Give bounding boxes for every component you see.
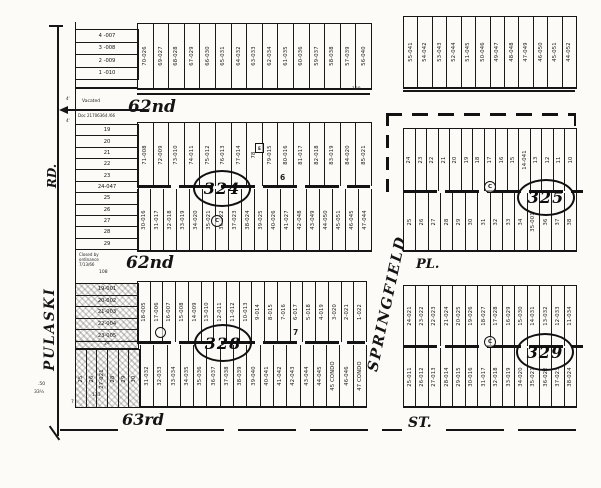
lot-strip-328-24: 24 [75,340,139,349]
lot: 18 [473,129,485,191]
lot: 30 [466,193,478,250]
lot: 20-002 [76,296,138,308]
lot: 24 [404,129,416,191]
street-label-springfield-pl: PL. [416,257,439,272]
lot: 57-039 [341,24,357,88]
lot: 32-018 [164,189,177,250]
lot: 19-026 [466,286,478,346]
lot: 26 [87,350,98,407]
lot: 33 [503,193,515,250]
lot: 27-013 [429,348,441,406]
closed-note-3: 7/13/66 [79,262,94,267]
lot: 42-043 [287,345,300,406]
lot: 44-052 [563,17,576,87]
circle-marker-328 [155,327,166,338]
lot: 41-042 [274,345,287,406]
lot: 3 -008 [76,43,138,56]
block-number-328: 328 [194,324,252,362]
lot: 26 [416,193,428,250]
lot: 27 [429,193,441,250]
north-strip-east-streetline [403,90,575,92]
lot: 32-018 [491,348,503,406]
dim-33half: 33½ [34,390,44,395]
lot: 19-001 [76,284,138,296]
lot: 62-034 [263,24,279,88]
lot: 46-050 [534,17,548,87]
lot: 24 [104,342,110,347]
lot: 10 [565,129,576,191]
plat-map: RD. PULASKI 62nd 62nd SPRINGFIELD PL. 63… [0,0,601,488]
lot-col-324-west: 192021222324-0472526272829 [75,124,139,250]
lot: 47-049 [519,17,533,87]
63rd-centerline-west [60,429,118,431]
lot: 30 [129,350,139,407]
lot: 16 [496,129,508,191]
lot: 81-017 [294,123,310,186]
lot: 2-021 [342,282,355,342]
lot: 58-038 [325,24,341,88]
lot: 52-044 [447,17,461,87]
lot-row-328-north: 18-00517-00616-00715-00814-00913-01012-0… [137,281,367,342]
lot: 28-014 [441,348,453,406]
lot: 22-023 [429,286,441,346]
lot: 53-043 [433,17,447,87]
lot-row-north-strip-west: 70-02669-02768-02867-02966-03065-03164-0… [137,23,372,90]
tick-4-upper: 4' [66,96,70,101]
lot: 20 [76,136,138,147]
lot: 29 [76,239,138,249]
lot: 3-020 [329,282,342,342]
c-marker-324: C [211,215,223,227]
dashed-boundary-top [386,113,576,116]
lot: 69-027 [154,24,170,88]
lot: 24-021 [404,286,416,346]
lot: 26 [76,205,138,216]
lot: 29-015 [453,348,465,406]
lot: 33-019 [503,348,515,406]
lot: 45-051 [333,189,346,250]
63rd-centerline-east [446,429,588,431]
lot: 67-029 [185,24,201,88]
lot: 46-045 [346,189,359,250]
lot: 16-029 [503,286,515,346]
lot: 23 [416,129,428,191]
lot: 4-019 [316,282,329,342]
lot: 79-015 [263,123,279,186]
lot: 70-026 [138,24,154,88]
lot: 82-018 [310,123,326,186]
lot: 33-019 [177,189,190,250]
lot: 19 [462,129,474,191]
lot: 5-018 [303,282,316,342]
lot: 40-026 [268,189,281,250]
lot: 23-022 [416,286,428,346]
lot: 31-032 [141,345,154,406]
lot: 84-020 [341,123,357,186]
lot: 34-035 [181,345,194,406]
dashed-boundary-east-stub [574,113,577,126]
lot-row-328-southwest: 252627-021282930 [75,349,140,408]
lot: 54-042 [418,17,432,87]
lot: 20 [450,129,462,191]
dim-133: 133 [92,393,101,398]
lot: 15 [508,129,520,191]
lot: 20-025 [453,286,465,346]
lot: 19 [76,125,138,136]
lot: 28 [441,193,453,250]
dashed-boundary-west [386,113,389,193]
alley-label-7: 7 [293,328,298,337]
lot: 41-027 [281,189,294,250]
lot: 59-037 [310,24,326,88]
alley-label-6: 6 [280,173,285,182]
lot: 9-014 [252,282,265,342]
lot: 30-016 [138,189,151,250]
lot: 1-022 [354,282,366,342]
lot: 45 CONDO [327,345,340,406]
lot: 71-008 [138,123,154,186]
lot: 42-048 [294,189,307,250]
lot: 24-047 [76,182,138,193]
lot: 32-033 [154,345,167,406]
lot: 22 [76,159,138,170]
lot: 43-049 [307,189,320,250]
block-number-329: 329 [516,333,574,371]
vacated-note: Vacated [82,99,100,104]
tick-4-lower: 4' [66,118,70,123]
lot: 65-031 [216,24,232,88]
lot: 27-021 [97,350,108,407]
lot: 39-040 [247,345,260,406]
lot: 25 [76,193,138,204]
lot: 33-034 [168,345,181,406]
alley-324 [137,185,370,188]
lot: 61-035 [278,24,294,88]
lot: 31 [478,193,490,250]
lot: 8-015 [265,282,278,342]
lot: 11-034 [565,286,576,346]
lot: 32 [491,193,503,250]
lot: 73-010 [169,123,185,186]
lot: 55-041 [404,17,418,87]
lot: 28 [76,227,138,238]
lot: 63-033 [247,24,263,88]
lot: 29 [453,193,465,250]
street-label-pulaski-rd: RD. [45,156,59,196]
lot: 43-044 [301,345,314,406]
c-marker-329: C [484,336,496,348]
north-strip-west-frontline [75,87,137,89]
lot: 60-036 [294,24,310,88]
lot-col-north-strip-west: 4 -0073 -0082 -0091 -010 [75,29,139,80]
lot-row-324-south: 30-01631-01732-01833-01934-02035-02136-0… [137,189,372,252]
lot: 21 [439,129,451,191]
lot: 21 [76,148,138,159]
street-label-pulaski: PULASKI [42,269,58,389]
lot: 44-050 [320,189,333,250]
lot: 31-017 [478,348,490,406]
e-box-marker: E [255,143,264,153]
street-label-62nd-lower: 62nd [126,253,174,273]
lot: 23 [76,170,138,181]
lot: 4 -007 [76,30,138,43]
lot: 68-028 [169,24,185,88]
lot: 50-046 [476,17,490,87]
lot: 51-045 [462,17,476,87]
lot: 78 [247,123,263,186]
vacated-arrow-head [59,106,68,114]
lot: 18-005 [138,282,151,342]
lot: 64-032 [232,24,248,88]
lot: 29 [119,350,130,407]
lot: 66-030 [200,24,216,88]
lot-row-328-south: 31-03232-03333-03434-03535-03636-03737-0… [140,345,367,408]
lot: 21-024 [441,286,453,346]
lot-row-324-north: 71-00872-00973-01074-01175-01276-01377-0… [137,122,372,186]
63rd-centerline-mid [166,429,402,431]
lot: 26-012 [416,348,428,406]
dim-108: 108 [99,270,108,275]
lot: 48-048 [505,17,519,87]
street-label-63rd-st: ST. [408,415,432,431]
dim-7: 7 [71,400,74,405]
lot: 22-004 [76,319,138,331]
c-marker-325: C [484,181,496,193]
lot: 1 -010 [76,68,138,80]
street-label-63rd: 63rd [122,410,164,429]
street-label-62nd-upper: 62nd [128,97,176,117]
lot: 72-009 [154,123,170,186]
lot: 56-040 [356,24,371,88]
lot: 25 [76,350,87,407]
lot: 7-016 [278,282,291,342]
north-strip-west-streetline [137,93,370,95]
lot: 2 -009 [76,55,138,68]
lot: 31-017 [151,189,164,250]
lot: 83-019 [325,123,341,186]
lot: 39-025 [255,189,268,250]
lot: 46-046 [340,345,353,406]
block-number-325: 325 [517,179,575,216]
lot-row-north-strip-east: 55-04154-04253-04352-04451-04550-04649-0… [403,16,577,89]
lot: 45-051 [548,17,562,87]
lot: 28 [108,350,119,407]
lot: 25-011 [404,348,416,406]
lot: 30-016 [466,348,478,406]
lot: 44-045 [314,345,327,406]
lot: 47-044 [359,189,371,250]
lot: 22 [427,129,439,191]
lot: 21-003 [76,307,138,319]
vacated-doc-note: Doc 21706364 /66 [78,113,115,118]
lot: 85-021 [356,123,371,186]
dim-128: 128 [352,87,361,92]
lot-col-328-west: 19-00120-00221-00322-00423-005 [75,283,139,342]
lot: 27 [76,216,138,227]
lot: 40-041 [261,345,274,406]
lot: 49-047 [491,17,505,87]
lot: 15-008 [176,282,189,342]
pulaski-top-tick [49,25,63,27]
block-number-324: 324 [193,170,251,207]
